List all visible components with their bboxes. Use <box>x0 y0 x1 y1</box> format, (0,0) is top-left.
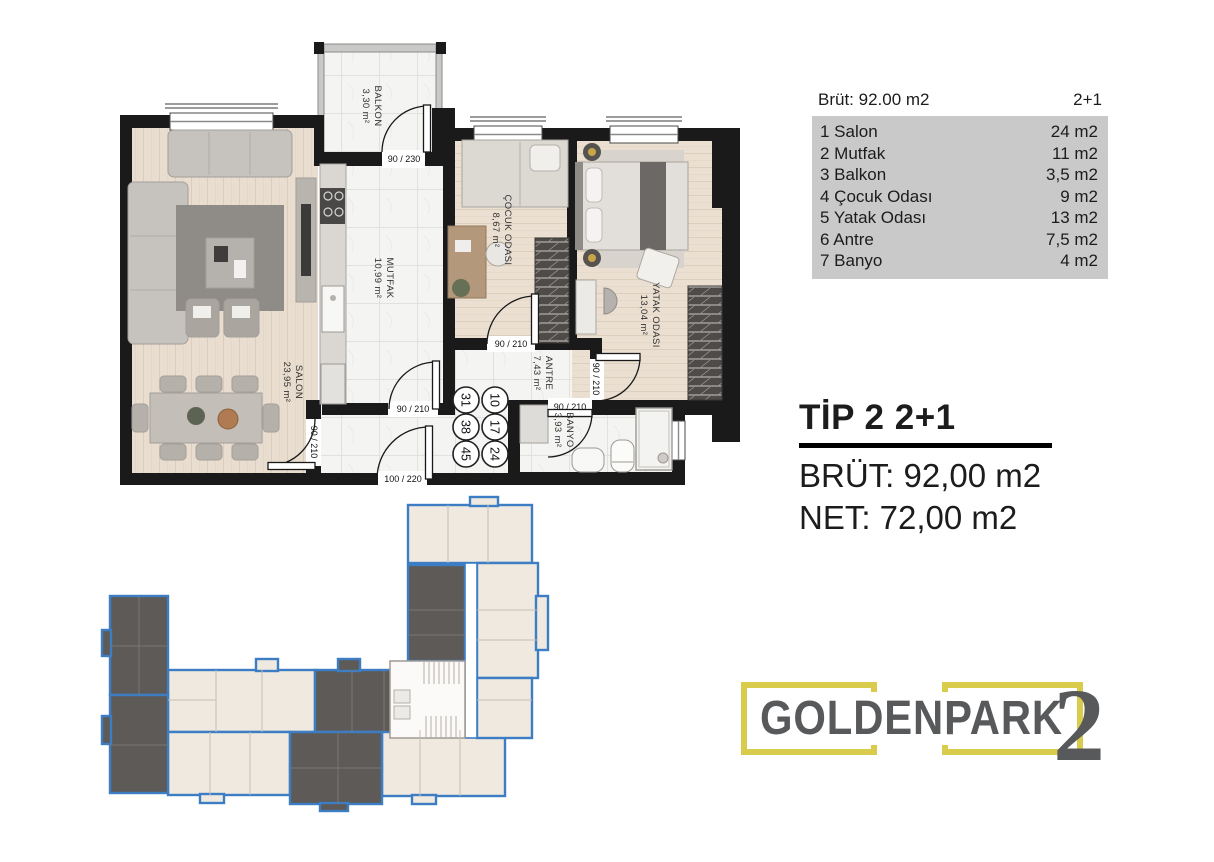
svg-text:23,95 m²: 23,95 m² <box>281 362 292 403</box>
sink-icon <box>572 448 604 472</box>
unit-circle: 31 <box>459 393 473 407</box>
toilet-icon <box>611 440 634 472</box>
net-area: NET: 72,00 m2 <box>799 497 1119 539</box>
table-header-brut: Brüt: 92.00 m2 <box>818 90 930 110</box>
logo-number: 2 <box>1053 668 1105 783</box>
svg-text:YATAK ODASI: YATAK ODASI <box>650 282 661 348</box>
room-area: 3,5 m2 <box>1046 164 1098 186</box>
table-row: 7 Banyo4 m2 <box>820 250 1098 272</box>
table-row: 4 Çocuk Odası9 m2 <box>820 186 1098 208</box>
svg-text:BALKON: BALKON <box>372 86 383 127</box>
door-label-banyo: 90 / 210 <box>554 402 587 412</box>
table-row: 6 Antre7,5 m2 <box>820 229 1098 251</box>
kidsroom-window <box>470 116 546 143</box>
room-name: 3 Balkon <box>820 164 886 186</box>
title-block: TİP 2 2+1 BRÜT: 92,00 m2 NET: 72,00 m2 <box>799 398 1119 539</box>
room-area: 7,5 m2 <box>1046 229 1098 251</box>
table-row: 2 Mutfak11 m2 <box>820 143 1098 165</box>
svg-text:MUTFAK: MUTFAK <box>384 258 395 299</box>
room-area: 13 m2 <box>1051 207 1098 229</box>
svg-text:ANTRE: ANTRE <box>543 356 554 390</box>
svg-text:8,67 m²: 8,67 m² <box>490 212 501 247</box>
unit-type-title: TİP 2 2+1 <box>799 398 1119 438</box>
svg-text:7,43 m²: 7,43 m² <box>531 355 542 390</box>
room-area-table: Brüt: 92.00 m2 2+1 1 Salon24 m2 2 Mutfak… <box>812 88 1108 279</box>
sink-icon <box>322 286 344 332</box>
table-body: 1 Salon24 m2 2 Mutfak11 m2 3 Balkon3,5 m… <box>812 116 1108 279</box>
svg-text:3,30 m²: 3,30 m² <box>360 88 371 123</box>
svg-text:ÇOCUK ODASI: ÇOCUK ODASI <box>502 195 513 266</box>
room-name: 7 Banyo <box>820 250 882 272</box>
room-label-salon: SALON 23,95 m² <box>281 362 304 403</box>
wardrobe <box>535 238 569 343</box>
room-label-balkon: BALKON 3,30 m² <box>360 86 383 127</box>
table-row: 5 Yatak Odası13 m2 <box>820 207 1098 229</box>
plant-icon <box>187 407 205 425</box>
room-name: 6 Antre <box>820 229 874 251</box>
door-label-entry: 100 / 220 <box>384 474 422 484</box>
table-row: 1 Salon24 m2 <box>820 121 1098 143</box>
svg-text:3,93 m²: 3,93 m² <box>552 412 563 447</box>
room-area: 24 m2 <box>1051 121 1098 143</box>
table-row: 3 Balkon3,5 m2 <box>820 164 1098 186</box>
room-name: 4 Çocuk Odası <box>820 186 932 208</box>
goldenpark-logo: GOLDENPARK 2 <box>731 658 1141 788</box>
salon-window <box>165 103 278 130</box>
unit-circle: 17 <box>488 420 502 434</box>
wardrobe <box>688 286 722 400</box>
room-label-antre: ANTRE 7,43 m² <box>531 355 554 390</box>
unit-circle: 10 <box>488 393 502 407</box>
room-label-banyo: BANYO 3,93 m² <box>552 412 575 447</box>
svg-text:13,04 m²: 13,04 m² <box>638 295 649 336</box>
door-label-balkon: 90 / 230 <box>388 154 421 164</box>
unit-circle: 38 <box>459 420 473 434</box>
logo-wordmark: GOLDENPARK <box>760 692 1063 745</box>
room-label-mutfak: MUTFAK 10,99 m² <box>372 258 395 299</box>
door-label-yatak: 90 / 210 <box>591 363 601 396</box>
door-label-cocuk: 90 / 210 <box>495 339 528 349</box>
room-area: 9 m2 <box>1060 186 1098 208</box>
title-underline <box>799 443 1052 448</box>
room-area: 4 m2 <box>1060 250 1098 272</box>
room-name: 2 Mutfak <box>820 143 885 165</box>
room-name: 1 Salon <box>820 121 878 143</box>
unit-circle: 45 <box>459 447 473 461</box>
apartment-floor-plan: 90 / 230 90 / 210 100 / 220 90 / 210 90 … <box>120 42 740 487</box>
door-label-mutfak: 90 / 210 <box>397 404 430 414</box>
plant-icon <box>452 279 470 297</box>
svg-text:10,99 m²: 10,99 m² <box>372 258 383 299</box>
svg-text:BANYO: BANYO <box>564 412 575 447</box>
unit-circle: 24 <box>488 447 502 461</box>
door-label-salon: 90 / 210 <box>309 426 319 459</box>
room-name: 5 Yatak Odası <box>820 207 926 229</box>
kitchen-furniture <box>320 164 346 404</box>
table-header: Brüt: 92.00 m2 2+1 <box>812 88 1108 116</box>
building-key-plan <box>102 497 548 811</box>
table-header-type: 2+1 <box>1073 90 1102 110</box>
brut-area: BRÜT: 92,00 m2 <box>799 455 1119 497</box>
room-area: 11 m2 <box>1052 143 1098 165</box>
bedroom-window <box>606 116 682 143</box>
svg-text:SALON: SALON <box>293 365 304 399</box>
bath-window <box>672 421 685 460</box>
